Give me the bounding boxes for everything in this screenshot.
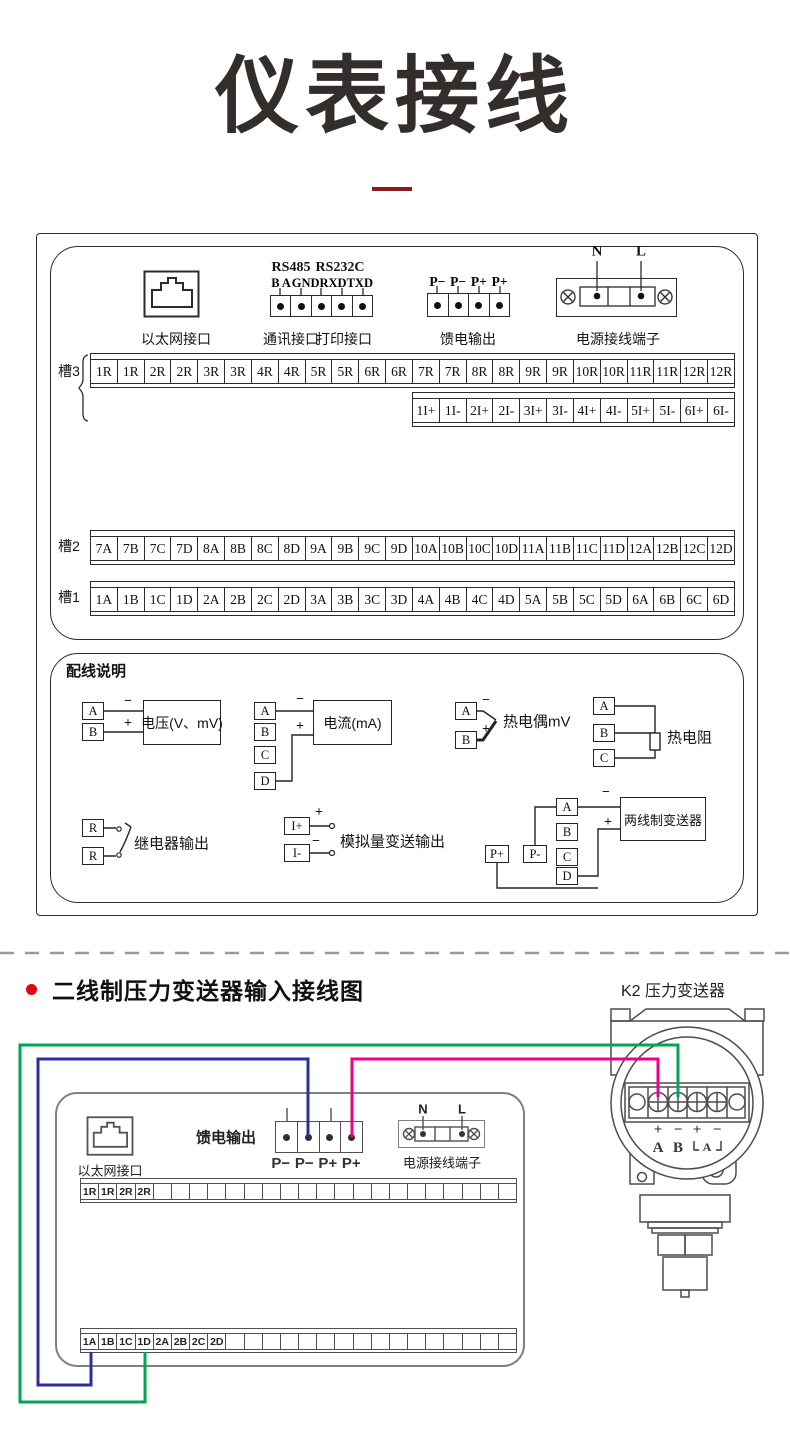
terminal-cell: 12B: [653, 537, 680, 560]
terminal-cell: 7D: [170, 537, 197, 560]
slot3-i-strip: 1I+1I-2I+2I-3I+3I-4I+4I-5I+5I-6I+6I-: [412, 392, 735, 427]
terminal-cell: 10B: [439, 537, 466, 560]
terminal-cell: [171, 1184, 189, 1199]
terminal-letter: D: [260, 774, 269, 789]
terminal-cell: 1D: [170, 588, 197, 611]
terminal-letter: D: [562, 869, 571, 884]
terminal-cell: 9D: [385, 537, 412, 560]
strip-band: [91, 560, 734, 564]
pin-label: P−: [269, 1155, 293, 1172]
terminal-cell: 4D: [492, 588, 519, 611]
terminal-cell: [353, 1184, 371, 1199]
pressure-transmitter-drawing: [611, 1009, 764, 1297]
terminal-p-minus: P-: [523, 845, 547, 863]
terminal-letter: I-: [293, 846, 301, 861]
terminal-letter: B: [89, 725, 97, 740]
terminal-letter: I+: [291, 819, 302, 834]
transmitter-pin-b: B: [673, 1140, 683, 1156]
strip-band: [81, 1349, 516, 1352]
terminal-cell: 7A: [91, 537, 117, 560]
strip-cells: 1I+1I-2I+2I-3I+3I-4I+4I-5I+5I-6I+6I-: [413, 399, 734, 422]
strip-cells: 1R1R2R2R: [81, 1184, 516, 1199]
terminal-a: A: [254, 702, 276, 720]
terminal-c: C: [593, 749, 615, 767]
terminal-cell: [225, 1334, 243, 1349]
thermocouple-label: 热电偶mV: [503, 711, 571, 732]
strip-cells: 1R1R2R2R3R3R4R4R5R5R6R6R7R7R8R8R9R9R10R1…: [91, 360, 734, 383]
ethernet-port-icon: [85, 1116, 135, 1156]
terminal-cell: 1B: [117, 588, 144, 611]
terminal-cell: 6B: [653, 588, 680, 611]
terminal-cell: 6D: [707, 588, 734, 611]
slot1-label: 槽1: [58, 587, 80, 607]
terminal-cell: 8C: [251, 537, 278, 560]
pin-label: A: [281, 276, 292, 291]
terminal-cell: 2B: [224, 588, 251, 611]
pin-label: P+: [469, 274, 490, 290]
minus-sign: −: [602, 785, 610, 801]
page-title: 仪表接线: [0, 44, 790, 149]
terminal-cell: 5R: [331, 360, 358, 383]
terminal-cell: [443, 1184, 461, 1199]
terminal-cell: [334, 1334, 352, 1349]
terminal-cell: [207, 1184, 225, 1199]
terminal-cell: [371, 1334, 389, 1349]
terminal-cell: 12C: [680, 537, 707, 560]
terminal-dot: [338, 303, 345, 310]
terminal-cell: 6R: [385, 360, 412, 383]
terminal-cell: [425, 1334, 443, 1349]
terminal-letter: B: [462, 733, 470, 748]
bracket-marks: [694, 1141, 721, 1150]
terminal-letter: A: [260, 704, 269, 719]
terminal-cell: 1A: [91, 588, 117, 611]
strip-cells: 1A1B1C1D2A2B2C2D: [81, 1334, 516, 1349]
terminal-cell: 1B: [98, 1334, 116, 1349]
terminal-cell: 9R: [546, 360, 573, 383]
terminal-cell: 9C: [358, 537, 385, 560]
terminal-letter: B: [261, 725, 269, 740]
terminal-dot: [359, 303, 366, 310]
minus-sign: −: [296, 692, 304, 708]
transmitter-pin-sign: −: [713, 1122, 722, 1138]
power-l-label: L: [636, 244, 646, 261]
terminal-cell: 7R: [412, 360, 439, 383]
terminal-cell: 7B: [117, 537, 144, 560]
terminal-letter: R: [89, 821, 97, 836]
terminal-cell: 1A: [81, 1334, 98, 1349]
pin-label: RXD: [320, 276, 347, 291]
terminal-dot: [455, 302, 462, 309]
terminal-c: C: [254, 746, 276, 764]
terminal-letter: C: [261, 748, 269, 763]
terminal-cell: 6I+: [680, 399, 707, 422]
terminal-cell: [462, 1334, 480, 1349]
wiring-panel: [50, 653, 744, 903]
terminal-cell: [468, 294, 489, 316]
terminal-cell: 8R: [466, 360, 493, 383]
terminal-cell: 1R: [117, 360, 144, 383]
terminal-cell: 1R: [81, 1184, 98, 1199]
terminal-cell: [407, 1334, 425, 1349]
terminal-cell: 10C: [466, 537, 493, 560]
terminal-cell: [352, 296, 372, 316]
terminal-cell: [462, 1184, 480, 1199]
terminal-cell: 8R: [492, 360, 519, 383]
terminal-cell: 5I-: [653, 399, 680, 422]
terminal-letter: A: [88, 704, 97, 719]
plus-sign: +: [482, 722, 490, 738]
pin-label: P−: [427, 274, 448, 290]
terminal-dot: [318, 303, 325, 310]
terminal-dot: [434, 302, 441, 309]
terminal-cell: [498, 1184, 516, 1199]
recorder-bottom-strip: 1A1B1C1D2A2B2C2D: [80, 1328, 517, 1353]
terminal-cell: [353, 1334, 371, 1349]
analog-output-label: 模拟量变送输出: [340, 831, 445, 852]
rs232c-label: RS232C: [315, 260, 364, 276]
terminal-cell: 12R: [707, 360, 734, 383]
terminal-cell: 12D: [707, 537, 734, 560]
slot2-strip: 7A7B7C7D8A8B8C8D9A9B9C9D10A10B10C10D11A1…: [90, 530, 735, 565]
comm-terminal-block: [270, 295, 373, 317]
terminal-cell: [244, 1184, 262, 1199]
terminal-letter: A: [461, 704, 470, 719]
terminal-cell: [316, 1334, 334, 1349]
terminal-cell: [334, 1184, 352, 1199]
terminal-dot: [277, 303, 284, 310]
voltage-device-box: 电压(V、mV): [143, 700, 221, 745]
transmitter-pin-sign: +: [654, 1122, 663, 1138]
terminal-cell: 10R: [600, 360, 627, 383]
terminal-cell: 7R: [439, 360, 466, 383]
terminal-cell: [276, 1122, 297, 1152]
terminal-dot: [348, 1134, 355, 1141]
device-label: 两线制变送器: [624, 810, 702, 829]
terminal-dot: [475, 302, 482, 309]
terminal-cell: 8A: [197, 537, 224, 560]
terminal-letter: R: [89, 849, 97, 864]
pin-label: P+: [316, 1155, 340, 1172]
terminal-cell: 1D: [135, 1334, 153, 1349]
slot3-label: 槽3: [58, 361, 80, 381]
transmitter-title: K2 压力变送器: [621, 977, 725, 1001]
terminal-cell: 5B: [546, 588, 573, 611]
ethernet-label: 以太网接口: [141, 329, 211, 349]
terminal-cell: [480, 1334, 498, 1349]
terminal-cell: 5A: [519, 588, 546, 611]
terminal-cell: 4B: [439, 588, 466, 611]
terminal-cell: 5C: [573, 588, 600, 611]
terminal-cell: [428, 294, 448, 316]
transmitter-pin-sign: +: [693, 1122, 702, 1138]
terminal-cell: [262, 1334, 280, 1349]
strip-band: [413, 422, 734, 426]
terminal-cell: 4I+: [573, 399, 600, 422]
strip-band: [91, 383, 734, 387]
terminal-cell: [225, 1184, 243, 1199]
strip-cells: 1A1B1C1D2A2B2C2D3A3B3C3D4A4B4C4D5A5B5C5D…: [91, 588, 734, 611]
terminal-cell: [389, 1334, 407, 1349]
terminal-b: B: [82, 723, 104, 741]
pin-label: P−: [293, 1155, 317, 1172]
terminal-cell: 3I+: [519, 399, 546, 422]
terminal-cell: [316, 1184, 334, 1199]
terminal-cell: 9A: [305, 537, 332, 560]
terminal-cell: 4I-: [600, 399, 627, 422]
terminal-b: B: [593, 724, 615, 742]
title-underline: [372, 187, 412, 191]
terminal-letter: B: [563, 825, 571, 840]
rtd-label: 热电阻: [667, 727, 712, 748]
bullet-icon: [26, 984, 37, 995]
terminal-cell: 1R: [91, 360, 117, 383]
terminal-cell: [271, 296, 290, 316]
terminal-cell: 3R: [224, 360, 251, 383]
terminal-cell: [311, 296, 331, 316]
pin-label: GND: [292, 276, 320, 291]
terminal-cell: [448, 294, 469, 316]
terminal-cell: [297, 1122, 319, 1152]
terminal-cell: [189, 1184, 207, 1199]
terminal-cell: 1I-: [439, 399, 466, 422]
ethernet-label: 以太网接口: [77, 1161, 142, 1180]
terminal-cell: [425, 1184, 443, 1199]
power-terminal-block: [556, 278, 677, 317]
terminal-cell: [290, 296, 310, 316]
terminal-cell: 12R: [680, 360, 707, 383]
terminal-d: D: [556, 867, 578, 885]
terminal-letter: P+: [490, 847, 504, 862]
terminal-cell: 3A: [305, 588, 332, 611]
pin-label: P+: [340, 1155, 364, 1172]
terminal-c: C: [556, 848, 578, 866]
terminal-r2: R: [82, 847, 104, 865]
terminal-cell: [407, 1184, 425, 1199]
minus-sign: −: [312, 834, 320, 850]
device-label: 电压(V、mV): [141, 713, 223, 733]
terminal-cell: 5R: [305, 360, 332, 383]
pin-label: P+: [489, 274, 510, 290]
terminal-i-plus: I+: [284, 817, 310, 835]
terminal-cell: 10R: [573, 360, 600, 383]
terminal-a: A: [455, 702, 477, 720]
terminal-cell: [480, 1184, 498, 1199]
terminal-cell: [340, 1122, 362, 1152]
terminal-dot: [305, 1134, 312, 1141]
section-heading: 二线制压力变送器输入接线图: [52, 972, 364, 1006]
terminal-cell: 5D: [600, 588, 627, 611]
ethernet-port-icon: [143, 270, 200, 318]
device-label: 电流(mA): [323, 713, 381, 733]
terminal-cell: 11R: [627, 360, 654, 383]
feed-terminal-block: [427, 293, 510, 317]
terminal-i-minus: I-: [284, 844, 310, 862]
feed-terminal-block: [275, 1121, 363, 1153]
plus-sign: +: [604, 815, 612, 831]
pin-label: TXD: [347, 276, 373, 291]
feed-pin-labels: P−P−P+P+: [269, 1155, 363, 1172]
terminal-cell: 5I+: [627, 399, 654, 422]
terminal-cell: 7C: [144, 537, 171, 560]
terminal-cell: 2D: [278, 588, 305, 611]
terminal-b: B: [556, 823, 578, 841]
terminal-cell: 9B: [331, 537, 358, 560]
slot1-strip: 1A1B1C1D2A2B2C2D3A3B3C3D4A4B4C4D5A5B5C5D…: [90, 581, 735, 616]
terminal-cell: 2C: [189, 1334, 207, 1349]
terminal-cell: 4R: [278, 360, 305, 383]
terminal-cell: [319, 1122, 341, 1152]
terminal-letter: C: [600, 751, 608, 766]
comm-pin-labels: BAGNDRXDTXD: [270, 276, 373, 291]
terminal-cell: 3I-: [546, 399, 573, 422]
twowire-device-box: 两线制变送器: [620, 797, 706, 841]
terminal-cell: 2I-: [492, 399, 519, 422]
terminal-cell: [371, 1184, 389, 1199]
power-terminal-block: [398, 1120, 485, 1148]
terminal-cell: 4A: [412, 588, 439, 611]
plus-sign: +: [296, 719, 304, 735]
pin-label: P−: [448, 274, 469, 290]
rs485-label: RS485: [272, 260, 311, 276]
relay-label: 继电器输出: [134, 833, 209, 854]
terminal-cell: 2A: [197, 588, 224, 611]
current-device-box: 电流(mA): [313, 700, 392, 745]
terminal-r1: R: [82, 819, 104, 837]
minus-sign: −: [482, 693, 490, 709]
terminal-cell: 4R: [251, 360, 278, 383]
terminal-cell: [280, 1334, 298, 1349]
transmitter-pin-a: A: [653, 1140, 664, 1156]
terminal-letter: P-: [529, 847, 540, 862]
terminal-cell: 8D: [278, 537, 305, 560]
terminal-letter: A: [562, 800, 571, 815]
feed-output-label: 馈电输出: [196, 1127, 256, 1148]
terminal-cell: 2R: [170, 360, 197, 383]
terminal-cell: [489, 294, 510, 316]
terminal-cell: 8B: [224, 537, 251, 560]
terminal-cell: 2C: [251, 588, 278, 611]
terminal-cell: 4C: [466, 588, 493, 611]
terminal-cell: 1R: [98, 1184, 116, 1199]
power-n-label: N: [418, 1102, 427, 1117]
terminal-letter: A: [599, 699, 608, 714]
slot3-r-strip: 1R1R2R2R3R3R4R4R5R5R6R6R7R7R8R8R9R9R10R1…: [90, 353, 735, 388]
terminal-cell: 3C: [358, 588, 385, 611]
terminal-a: A: [556, 798, 578, 816]
feed-output-label: 馈电输出: [440, 329, 496, 349]
strip-band: [81, 1199, 516, 1202]
terminal-cell: 2D: [207, 1334, 225, 1349]
terminal-cell: 2R: [144, 360, 171, 383]
terminal-dot: [496, 302, 503, 309]
terminal-cell: 11R: [653, 360, 680, 383]
terminal-cell: 6I-: [707, 399, 734, 422]
terminal-cell: 6C: [680, 588, 707, 611]
power-terminal-label: 电源接线端子: [403, 1153, 481, 1172]
slot2-label: 槽2: [58, 536, 80, 556]
power-n-label: N: [592, 244, 603, 261]
power-l-label: L: [458, 1102, 466, 1117]
terminal-dot: [326, 1134, 333, 1141]
plus-sign: +: [124, 716, 132, 732]
recorder-top-strip: 1R1R2R2R: [80, 1178, 517, 1203]
terminal-cell: [244, 1334, 262, 1349]
terminal-cell: [331, 296, 351, 316]
terminal-cell: [298, 1184, 316, 1199]
pin-label: B: [270, 276, 281, 291]
terminal-b: B: [455, 731, 477, 749]
terminal-cell: 12A: [627, 537, 654, 560]
terminal-cell: 1C: [116, 1334, 134, 1349]
terminal-dot: [283, 1134, 290, 1141]
terminal-cell: [298, 1334, 316, 1349]
terminal-cell: 3B: [331, 588, 358, 611]
terminal-cell: [280, 1184, 298, 1199]
terminal-cell: 1C: [144, 588, 171, 611]
terminal-cell: 6R: [358, 360, 385, 383]
terminal-a: A: [82, 702, 104, 720]
terminal-cell: [262, 1184, 280, 1199]
terminal-cell: 2B: [171, 1334, 189, 1349]
strip-band: [91, 611, 734, 615]
comm-port-label: 通讯接口: [263, 329, 319, 349]
terminal-letter: B: [600, 726, 608, 741]
terminal-cell: [498, 1334, 516, 1349]
transmitter-pin-sign: −: [674, 1122, 683, 1138]
terminal-d: D: [254, 772, 276, 790]
terminal-a: A: [593, 697, 615, 715]
transmitter-pin-bracket-a: A: [703, 1140, 712, 1154]
terminal-letter: C: [563, 850, 571, 865]
terminal-cell: [153, 1184, 171, 1199]
terminal-cell: 2A: [153, 1334, 171, 1349]
minus-sign: −: [124, 694, 132, 710]
terminal-cell: 11A: [519, 537, 546, 560]
terminal-cell: 2I+: [466, 399, 493, 422]
terminal-cell: [389, 1184, 407, 1199]
terminal-cell: [443, 1334, 461, 1349]
terminal-p-plus: P+: [485, 845, 509, 863]
terminal-cell: 3D: [385, 588, 412, 611]
terminal-cell: 1I+: [413, 399, 439, 422]
terminal-b: B: [254, 723, 276, 741]
terminal-cell: 11D: [600, 537, 627, 560]
print-port-label: 打印接口: [316, 329, 372, 349]
wiring-title: 配线说明: [66, 660, 126, 681]
terminal-cell: 10A: [412, 537, 439, 560]
terminal-cell: 10D: [492, 537, 519, 560]
terminal-dot: [298, 303, 305, 310]
terminal-cell: 11C: [573, 537, 600, 560]
terminal-cell: 2R: [135, 1184, 153, 1199]
terminal-cell: 6A: [627, 588, 654, 611]
plus-sign: +: [315, 805, 323, 821]
terminal-cell: 9R: [519, 360, 546, 383]
terminal-cell: 2R: [116, 1184, 134, 1199]
feed-pin-labels: P−P−P+P+: [427, 274, 510, 290]
power-terminal-label: 电源接线端子: [576, 329, 660, 349]
terminal-cell: 11B: [546, 537, 573, 560]
strip-cells: 7A7B7C7D8A8B8C8D9A9B9C9D10A10B10C10D11A1…: [91, 537, 734, 560]
terminal-cell: 3R: [197, 360, 224, 383]
